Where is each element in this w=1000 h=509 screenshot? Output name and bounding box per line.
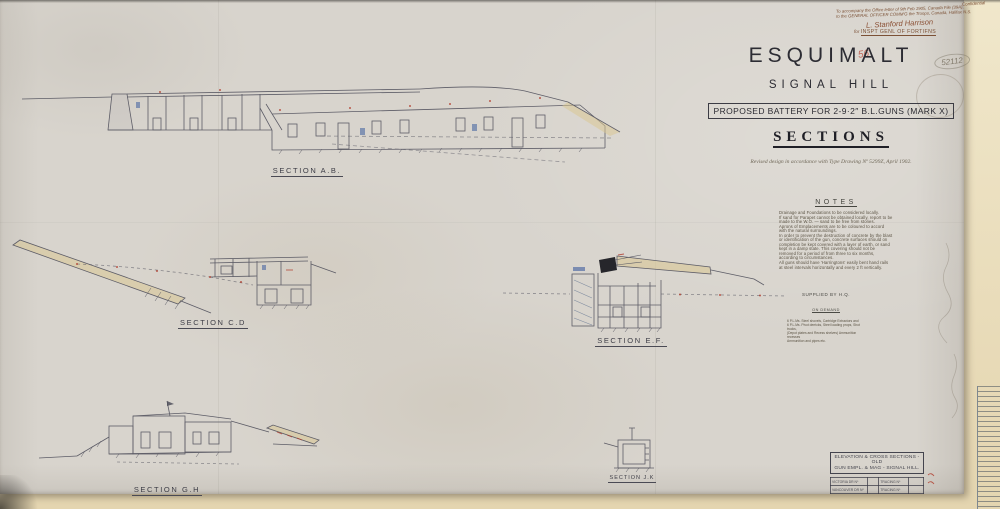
registry-cell [909,478,924,486]
section-ab-drawing [20,78,630,168]
scanned-drawing-sheet: Confidential To accompany the Office let… [0,0,1000,509]
registry-title-line: ELEVATION & CROSS SECTIONS - OLD [832,455,922,465]
registry-cell: TRACING Nº [879,478,909,486]
revision-note: Revised design in accordance with Type D… [700,159,962,165]
proposal-caption: PROPOSED BATTERY FOR 2-9·2″ B.L.GUNS (MA… [708,103,955,119]
registry-cell: VANCOUVER DR Nº [831,486,868,494]
section-gh-drawing [35,388,320,488]
registry-cell: TRACING Nº [879,486,909,494]
supply-line: Ammunition and pipes etc. [787,340,865,344]
measuring-scale-strip [977,386,1000,509]
section-cd-label: SECTION C.D [153,318,273,327]
registry-table: VICTORIA DR Nº TRACING Nº VANCOUVER DR N… [830,477,924,494]
red-check-marks [926,470,936,488]
drawing-title: ESQUIMALT [700,44,962,68]
section-jk-label: SECTION J.K [592,475,672,481]
section-ef-drawing [498,240,798,340]
notes-heading: NOTES [815,199,857,207]
drawing-subtitle: SIGNAL HILL [700,79,962,91]
top-edge-shadow [0,0,1000,3]
supply-subheading: ON DEMAND [812,308,840,313]
registry-block: ELEVATION & CROSS SECTIONS - OLD GUN EMP… [830,452,924,494]
registry-title-line: GUN EMPL. & MAG - SIGNAL HILL. [832,466,922,471]
supply-heading: SUPPLIED BY H.Q. [787,292,865,297]
section-gh-label: SECTION G.H [107,485,227,494]
registry-cell [909,486,924,494]
signature-prefix: for [854,29,859,34]
registry-cell [868,486,879,494]
section-ef-label: SECTION E.F. [571,336,691,345]
pencil-scribble [930,238,962,448]
title-block: ESQUIMALT SIGNAL HILL PROPOSED BATTERY F… [700,44,962,165]
signature-title: INSPT GENL OF FORTIFNS [861,29,936,36]
section-jk-drawing [598,426,673,478]
drawing-type-caption: SECTIONS [773,129,889,148]
registry-cell [868,478,879,486]
section-ab-label: SECTION A.B. [247,166,367,175]
section-cd-drawing [5,228,340,328]
registry-cell: VICTORIA DR Nº [831,478,868,486]
supply-note-block: SUPPLIED BY H.Q. ON DEMAND 6 P.L.Ms. Ste… [787,292,865,343]
